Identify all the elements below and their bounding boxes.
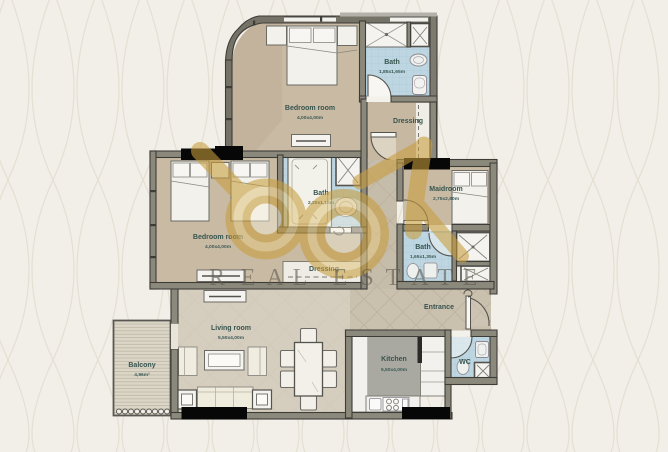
svg-text:T: T xyxy=(438,265,453,291)
svg-text:R: R xyxy=(209,265,225,291)
svg-text:4,96m²: 4,96m² xyxy=(134,372,150,378)
svg-text:Maidroom: Maidroom xyxy=(429,186,462,193)
svg-text:Entrance: Entrance xyxy=(424,304,454,311)
svg-text:WC: WC xyxy=(459,359,471,366)
svg-text:Dressing: Dressing xyxy=(393,118,423,125)
svg-text:A: A xyxy=(266,265,284,291)
svg-text:A: A xyxy=(411,265,429,291)
svg-text:Bedroom room: Bedroom room xyxy=(285,105,335,112)
svg-text:4,00x4,00m: 4,00x4,00m xyxy=(205,244,232,250)
svg-text:Balcony: Balcony xyxy=(128,362,155,369)
svg-text:L: L xyxy=(293,265,308,291)
svg-text:Bath: Bath xyxy=(384,59,400,66)
svg-text:1,65x1,35m: 1,65x1,35m xyxy=(410,254,437,260)
svg-text:2,75x2,80m: 2,75x2,80m xyxy=(433,196,460,202)
svg-text:Living room: Living room xyxy=(211,325,251,332)
svg-text:Kitchen: Kitchen xyxy=(381,356,407,363)
svg-text:4,00x4,00m: 4,00x4,00m xyxy=(297,115,324,121)
svg-text:1,85x1,65m: 1,85x1,65m xyxy=(379,69,406,75)
svg-text:Bath: Bath xyxy=(415,244,431,251)
svg-text:E: E xyxy=(333,265,348,291)
svg-text:E: E xyxy=(463,265,478,291)
svg-text:5,50x4,00m: 5,50x4,00m xyxy=(381,367,408,373)
svg-text:T: T xyxy=(386,265,401,291)
svg-text:5,50x4,00m: 5,50x4,00m xyxy=(218,335,245,341)
svg-text:S: S xyxy=(360,265,373,291)
svg-text:E: E xyxy=(241,265,256,291)
